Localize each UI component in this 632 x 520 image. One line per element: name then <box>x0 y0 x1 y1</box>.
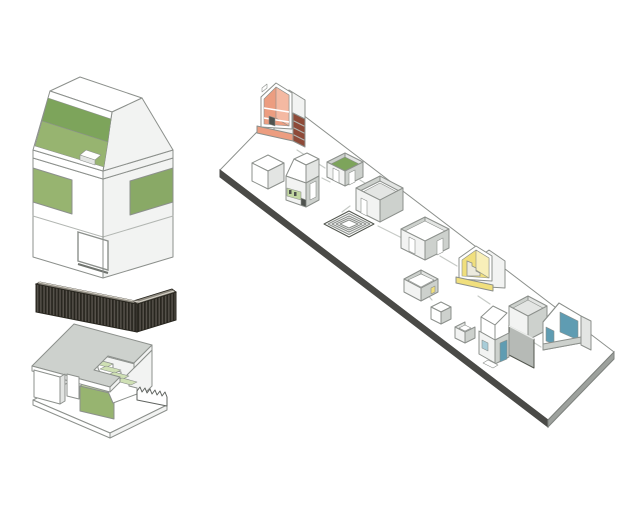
site-platform-slab <box>220 102 614 427</box>
doorway-notch <box>333 168 339 183</box>
louver-screen <box>36 282 176 332</box>
slab-top <box>220 102 614 420</box>
doorway-notch <box>361 198 367 216</box>
model-small-cube <box>431 302 451 324</box>
axonometric-drawing <box>0 0 632 520</box>
doorway-notch <box>310 181 316 200</box>
model-closed-cube <box>252 155 284 189</box>
wall-panel-1-side <box>60 374 65 404</box>
architectural-diagram <box>0 0 632 520</box>
doorway-notch <box>349 170 355 185</box>
blue-door <box>500 340 507 362</box>
ground-floor-unit <box>32 324 167 438</box>
doorway-notch <box>437 238 443 255</box>
doorway-notch <box>409 237 415 254</box>
exploded-house <box>32 77 176 438</box>
roof-step <box>262 84 267 92</box>
interior-door <box>269 116 275 126</box>
side-wall <box>581 316 591 350</box>
model-platform <box>220 83 614 427</box>
upper-house <box>33 77 173 278</box>
wall-panel-2 <box>67 374 79 399</box>
